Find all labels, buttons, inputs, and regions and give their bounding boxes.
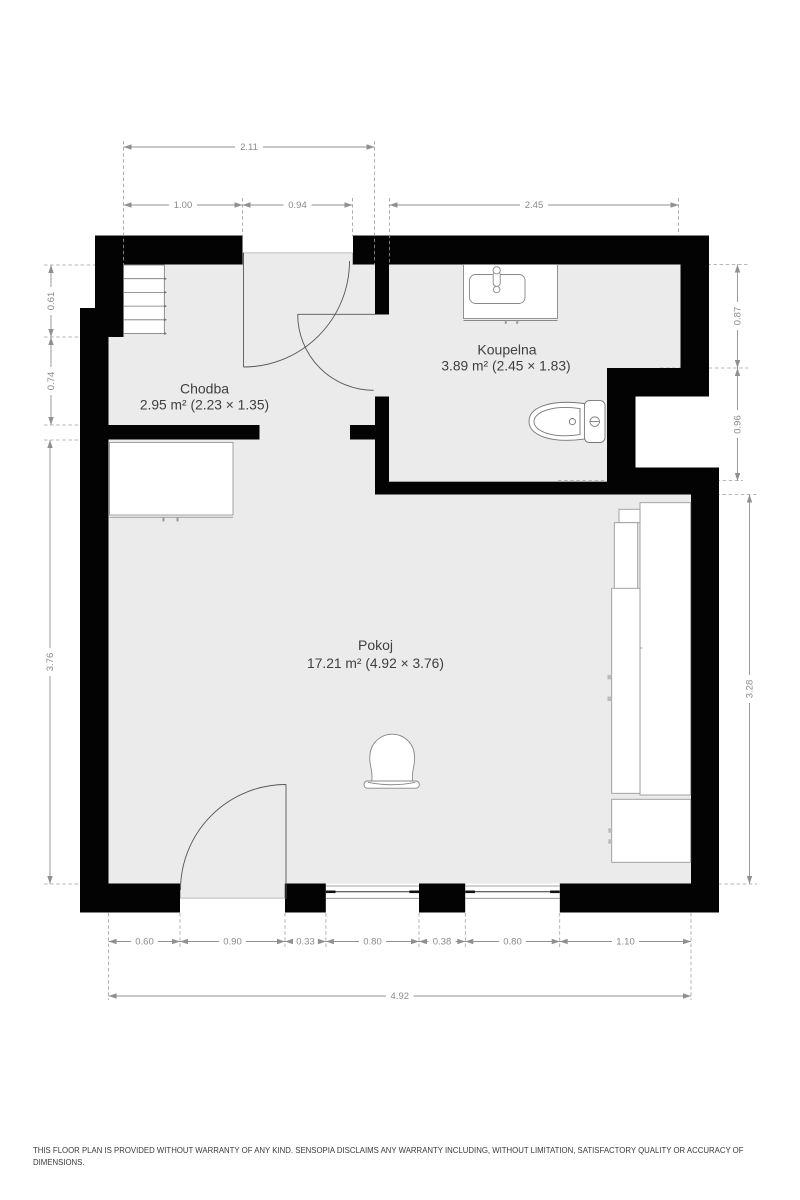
svg-text:0.74: 0.74: [46, 372, 57, 391]
svg-text:DIMENSIONS.: DIMENSIONS.: [33, 1158, 85, 1167]
svg-text:3.28: 3.28: [745, 680, 756, 699]
svg-text:0.38: 0.38: [433, 937, 452, 948]
svg-text:0.90: 0.90: [223, 937, 242, 948]
svg-text:0.60: 0.60: [135, 937, 154, 948]
svg-text:0.87: 0.87: [733, 307, 744, 326]
svg-text:0.80: 0.80: [503, 937, 522, 948]
svg-text:4.92: 4.92: [391, 991, 410, 1002]
svg-text:Koupelna: Koupelna: [477, 342, 536, 358]
svg-text:0.61: 0.61: [46, 292, 57, 311]
svg-text:17.21 m² (4.92 × 3.76): 17.21 m² (4.92 × 3.76): [307, 656, 444, 671]
svg-text:0.80: 0.80: [363, 937, 382, 948]
svg-text:0.96: 0.96: [733, 415, 744, 434]
svg-text:0.94: 0.94: [288, 200, 307, 211]
svg-text:2.11: 2.11: [240, 142, 258, 153]
svg-text:1.00: 1.00: [174, 200, 193, 211]
svg-text:1.10: 1.10: [616, 937, 635, 948]
svg-text:3.89 m² (2.45 × 1.83): 3.89 m² (2.45 × 1.83): [441, 359, 570, 374]
svg-text:0.33: 0.33: [296, 937, 315, 948]
svg-text:Chodba: Chodba: [180, 381, 229, 397]
svg-text:THIS FLOOR PLAN IS PROVIDED WI: THIS FLOOR PLAN IS PROVIDED WITHOUT WARR…: [33, 1146, 744, 1155]
svg-text:Pokoj: Pokoj: [358, 637, 393, 653]
svg-text:2.45: 2.45: [525, 200, 544, 211]
svg-text:3.76: 3.76: [45, 653, 56, 672]
svg-text:2.95 m² (2.23 × 1.35): 2.95 m² (2.23 × 1.35): [140, 398, 269, 413]
